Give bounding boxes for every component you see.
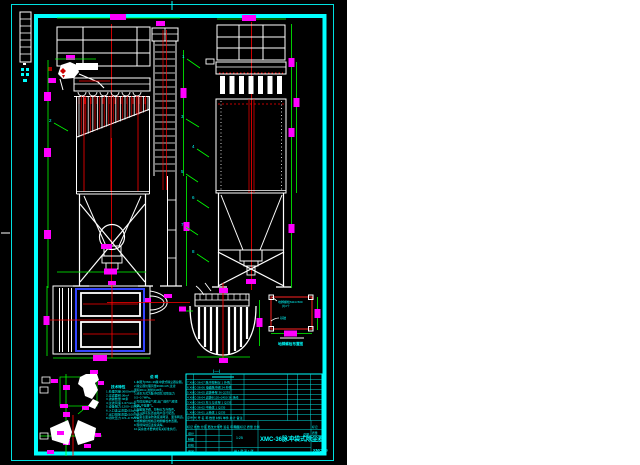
sig-row: 制图 xyxy=(188,437,194,442)
anchor-caption: 地脚螺栓布置图 xyxy=(278,341,304,346)
right-grid-row: 质量 xyxy=(312,431,318,435)
drawing-title-suffix: 总图 xyxy=(303,432,309,437)
sig-row: 校核 xyxy=(188,443,194,448)
bom-row: 3 XMC-36-03 灰斗与支架 1 Q235 xyxy=(187,400,232,405)
right-grid-row: 标记 xyxy=(312,425,318,429)
sheet-count: 共 1 张 第 1 张 xyxy=(234,448,254,453)
scale-value: 1:25 xyxy=(236,436,243,440)
bom-row: 4 XMC-36-04 滤袋Φ120×2450 36 涤纶 xyxy=(187,395,239,400)
drawing-title: XMC-36脉冲袋式除尘器 xyxy=(260,435,325,443)
bom-row: 5 XMC-36-05 滤袋骨架 36 Q235 xyxy=(187,390,230,395)
stage-row: 阶段标记 质量 比例 xyxy=(234,424,260,429)
bom-row: 2 XMC-36-02 中箱体 1 Q235 xyxy=(187,405,226,410)
drawing-page: 1 2 3 4 5 6 7 8 xyxy=(0,0,640,465)
bom-row: 7 XMC-36-07 脉冲控制仪 1 外购 xyxy=(187,380,230,385)
revision-header-row: 标记 处数 分区 更改文件号 签名 年月日 xyxy=(187,424,239,429)
anchor-note-3: 基础 xyxy=(280,315,286,320)
note-line: 10.其余技术要求按有关标准执行。 xyxy=(134,426,179,431)
sig-row: 审定 xyxy=(188,449,194,454)
section-caption: Ⅰ—Ⅰ xyxy=(213,369,220,374)
corner-mark: XMC-36 xyxy=(313,448,328,453)
notes-left-title: 技术特性 xyxy=(111,384,126,389)
cad-canvas[interactable]: 1 2 3 4 5 6 7 8 xyxy=(0,0,640,465)
notes-right-title: 说 明 xyxy=(150,374,159,379)
bom-header-row: 序号 代 号 名 称 数量 材料 单件 总计 备注 xyxy=(187,415,243,420)
bom-row: 6 XMC-36-06 电磁脉冲阀 24 外购 xyxy=(187,385,232,390)
anchor-note-2: 共4个 xyxy=(282,303,290,308)
bom-row: 1 XMC-36-01 上箱体 1 Q235 xyxy=(187,410,226,415)
sig-row: 设计 xyxy=(188,431,194,436)
